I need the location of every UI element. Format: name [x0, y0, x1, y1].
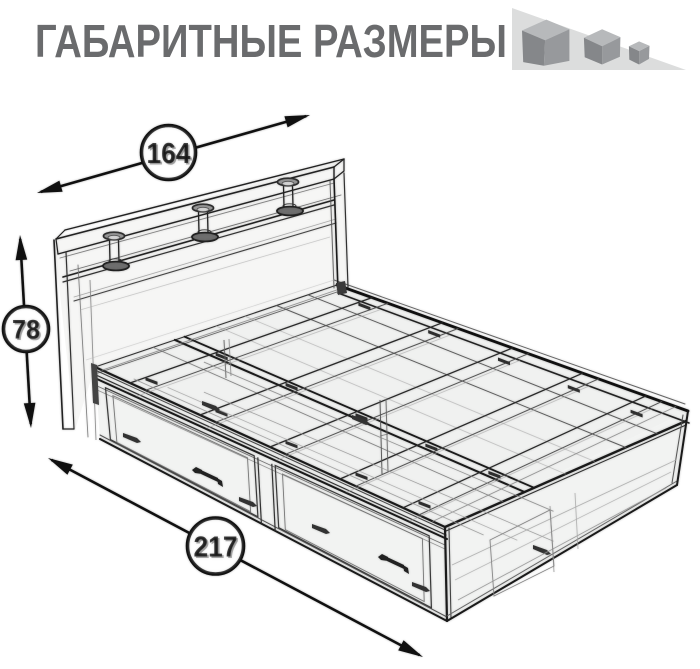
svg-text:ГАБАРИТНЫЕ РАЗМЕРЫ: ГАБАРИТНЫЕ РАЗМЕРЫ [35, 15, 507, 67]
